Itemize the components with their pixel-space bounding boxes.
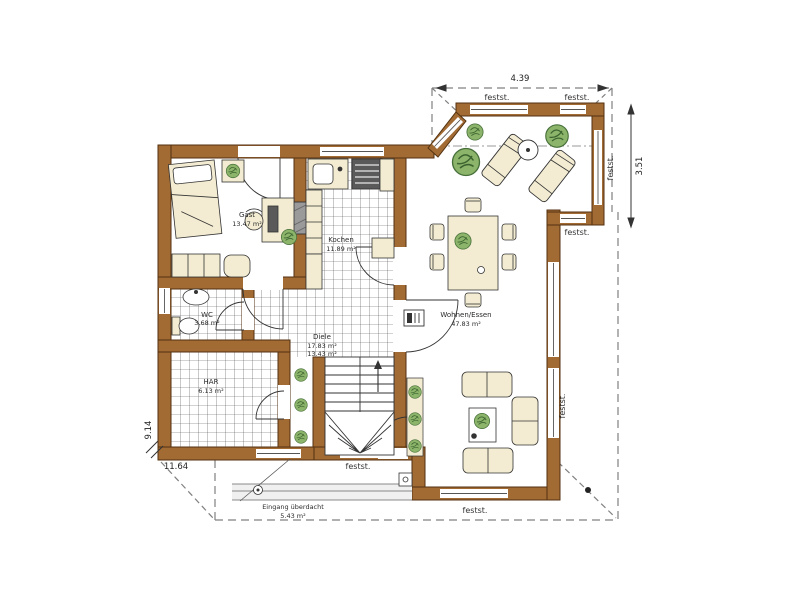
kitchen-island xyxy=(372,238,394,258)
entrance-canopy xyxy=(232,459,412,501)
festst-label: festst. xyxy=(558,394,567,419)
room-label-har: HAR xyxy=(204,378,219,386)
floor-plan-page: Gast 13.47 m² Kochen 11.89 m² WC 3.68 m²… xyxy=(0,0,800,600)
festst-label: festst. xyxy=(485,93,510,102)
plant-icon xyxy=(295,369,308,382)
dining-chair xyxy=(465,293,481,307)
room-area-eingang: 5.43 m² xyxy=(280,512,306,520)
plant-icon xyxy=(546,125,569,148)
dimension-bottom: 11.64 xyxy=(164,462,188,472)
plant-icon xyxy=(409,440,422,453)
dining-chair xyxy=(502,224,516,240)
festst-label: festst. xyxy=(463,506,488,515)
room-area-diele: 17.83 m² xyxy=(307,342,337,350)
sink-basin xyxy=(313,164,333,184)
sink-tap xyxy=(338,167,342,171)
kitchen-counter-left2 xyxy=(306,254,322,289)
room-label-wohnen: Wohnen/Essen xyxy=(440,311,491,319)
dimension-left: 9.14 xyxy=(144,421,154,440)
vent-symbol-box xyxy=(404,310,424,326)
corner-marker-dot xyxy=(585,487,591,493)
dimension-top: 4.39 xyxy=(511,74,530,84)
room-area-gast: 13.47 m² xyxy=(232,220,262,228)
room-area-har: 6.13 m² xyxy=(198,387,224,395)
festst-label: festst. xyxy=(565,228,590,237)
bed xyxy=(168,160,221,238)
room-area-wc: 3.68 m² xyxy=(194,319,220,327)
plant-icon xyxy=(453,149,480,176)
dining-chair xyxy=(502,254,516,270)
room-area2-diele: 13.43 m² xyxy=(307,350,337,358)
plant-icon xyxy=(455,233,471,249)
downpipe-symbol xyxy=(399,473,412,486)
kitchen-counter-right xyxy=(380,159,394,191)
armchair xyxy=(224,255,250,277)
dining-chair xyxy=(430,254,444,270)
plant-icon xyxy=(409,386,422,399)
plant-icon xyxy=(409,413,422,426)
dining-set xyxy=(430,198,516,307)
dining-table xyxy=(448,216,498,290)
dining-chair xyxy=(465,198,481,212)
terrace-furniture xyxy=(453,124,577,203)
stove xyxy=(352,159,382,189)
sideboard xyxy=(172,254,220,277)
plant-icon xyxy=(295,399,308,412)
plant-icon xyxy=(226,164,240,178)
room-label-gast: Gast xyxy=(239,211,255,219)
plant-icon xyxy=(281,229,296,244)
plant-icon xyxy=(295,431,308,444)
festst-label: festst. xyxy=(346,462,371,471)
dimension-right: 3.51 xyxy=(635,157,645,176)
festst-label: festst. xyxy=(606,156,615,181)
room-label-diele: Diele xyxy=(313,333,331,341)
room-label-wc: WC xyxy=(201,311,213,319)
sofa-group xyxy=(462,372,538,473)
plant-icon xyxy=(467,124,483,140)
staircase xyxy=(325,357,394,455)
gast-furniture xyxy=(168,160,296,277)
lounger xyxy=(480,133,529,188)
plant-icon xyxy=(474,413,489,428)
room-label-eingang: Eingang überdacht xyxy=(262,503,324,511)
floor-plan-drawing: Gast 13.47 m² Kochen 11.89 m² WC 3.68 m²… xyxy=(0,0,800,600)
room-area-wohnen: 47.83 m² xyxy=(451,320,481,328)
desk-computer xyxy=(268,206,278,232)
room-label-kochen: Kochen xyxy=(328,236,354,244)
festst-label: festst. xyxy=(565,93,590,102)
dining-chair xyxy=(430,224,444,240)
room-area-kochen: 11.89 m² xyxy=(326,245,356,253)
